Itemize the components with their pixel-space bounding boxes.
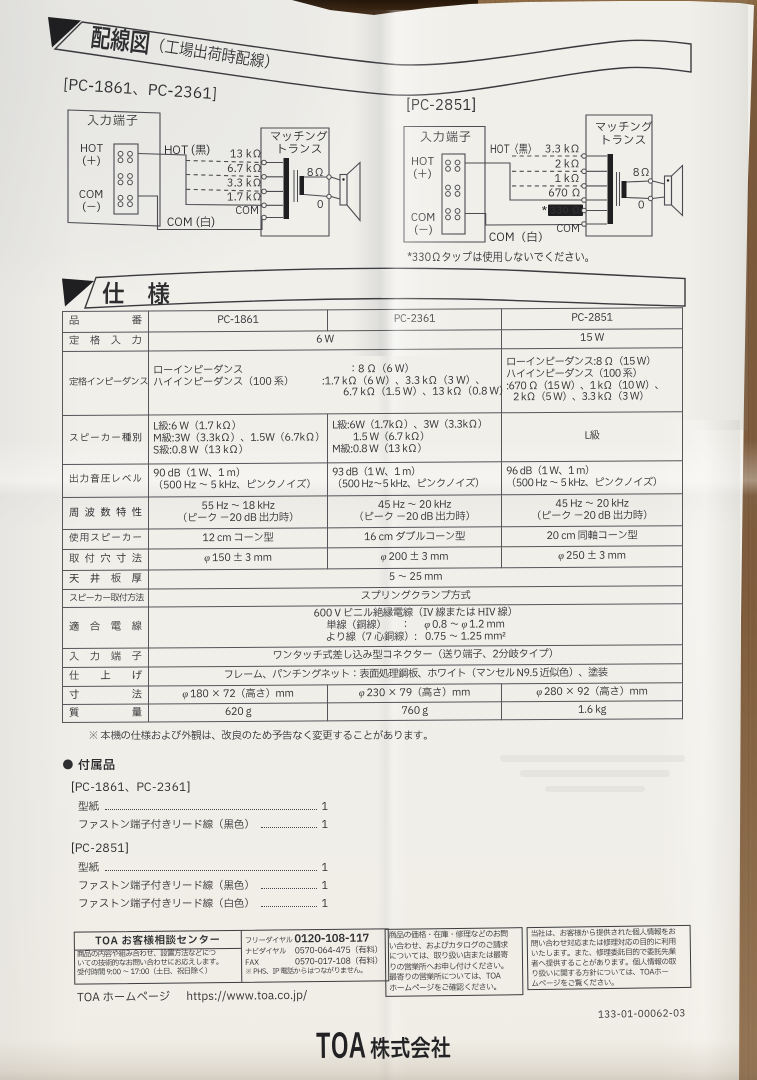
svg-text:0: 0 [638, 198, 645, 214]
svg-text:COM (白): COM (白) [167, 215, 215, 232]
svg-text:COM: COM [235, 203, 259, 219]
svg-text:*330Ωタップは使用しないでください。: *330Ωタップは使用しないでください。 [407, 250, 595, 267]
svg-text:(＋): (＋) [82, 153, 101, 170]
svg-text:8Ω: 8Ω [307, 165, 324, 181]
svg-text:0: 0 [317, 197, 324, 213]
svg-text:3.3 kΩ: 3.3 kΩ [545, 142, 580, 158]
svg-text:HOT〈黒〉: HOT〈黒〉 [490, 142, 537, 159]
svg-text:8Ω: 8Ω [633, 165, 650, 181]
svg-text:入力端子: 入力端子 [420, 129, 472, 147]
svg-text:(＋): (＋) [413, 166, 432, 183]
svg-text:トランス: トランス [276, 142, 322, 159]
svg-text:(−): (−) [82, 199, 101, 216]
svg-text:*: * [541, 203, 547, 221]
svg-text:HOT (黒): HOT (黒) [164, 143, 210, 160]
svg-text:COM: COM [556, 221, 580, 237]
svg-text:TOA: TOA [316, 1021, 367, 1074]
svg-text:トランス: トランス [600, 133, 646, 150]
svg-text:[PC-2851]: [PC-2851] [406, 94, 476, 117]
svg-text:(−): (−) [414, 222, 433, 239]
svg-text:配線図: 配線図 [89, 19, 152, 63]
svg-text:入力端子: 入力端子 [87, 113, 139, 131]
svg-text:COM（白）: COM（白） [489, 230, 549, 247]
svg-text:株式会社: 株式会社 [370, 1032, 451, 1068]
svg-text:[PC-1861、PC-2361]: [PC-1861、PC-2361] [63, 74, 218, 107]
svg-text:仕 様: 仕 様 [102, 277, 170, 313]
svg-text:670 Ω: 670 Ω [548, 186, 581, 202]
svg-text:330 Ω: 330 Ω [550, 204, 581, 219]
